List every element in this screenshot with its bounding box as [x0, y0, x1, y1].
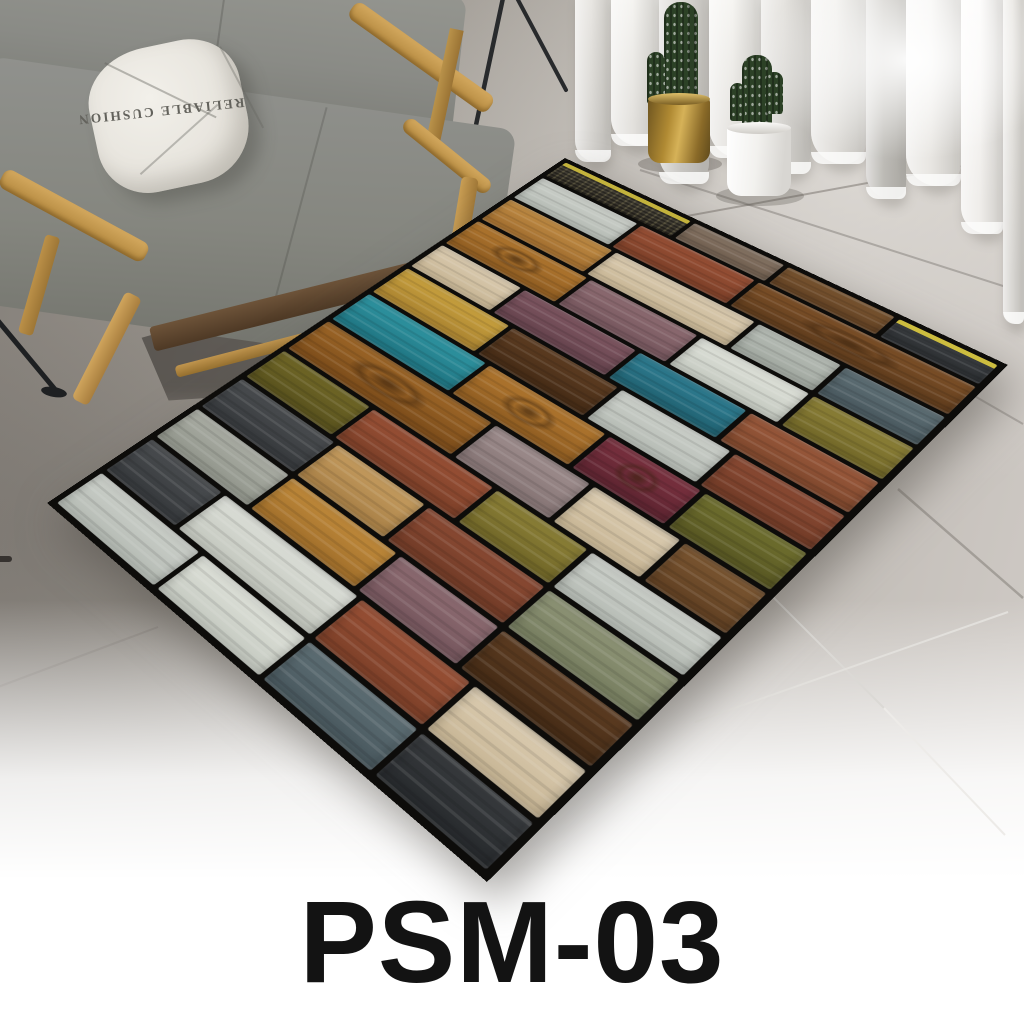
model-label: PSM-03: [0, 884, 1024, 1000]
product-photo: RELIABLE CUSHION PSM-03: [0, 0, 1024, 1024]
